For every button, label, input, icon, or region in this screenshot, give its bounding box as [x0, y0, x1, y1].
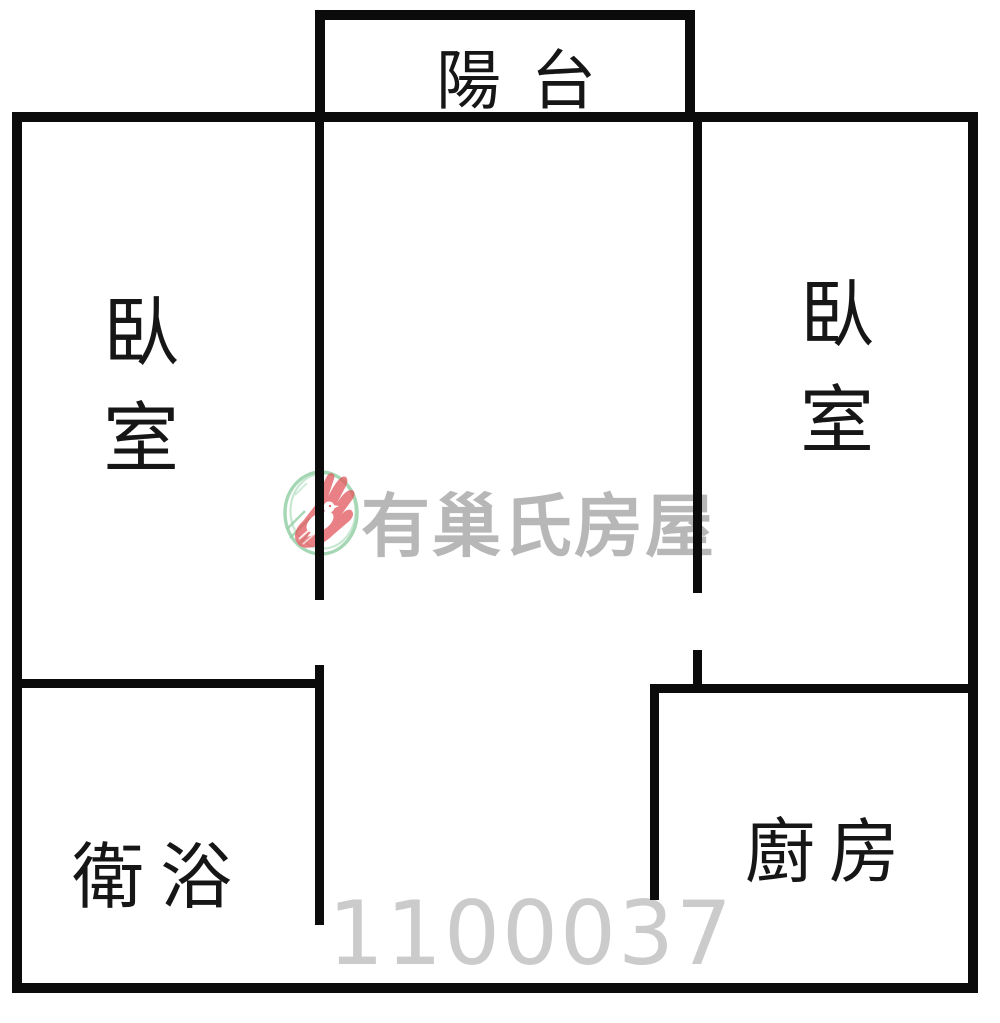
wall-kitchen-left — [650, 684, 659, 900]
balcony-label: 陽台 — [436, 28, 626, 122]
wall-balcony-left — [315, 10, 325, 122]
kitchen-label: 廚房 — [745, 796, 913, 897]
bedroom-right-char-2: 室 — [796, 368, 878, 474]
floor-plan: 有巢氏房屋 1100037 陽台 臥 室 臥 室 衛浴 廚房 — [0, 0, 1000, 1023]
wall-balcony-top — [315, 10, 695, 20]
wall-outer-bottom — [12, 983, 978, 993]
bedroom-left-char-2: 室 — [100, 386, 182, 492]
wall-balcony-right — [685, 10, 695, 122]
bedroom-right-char-1: 臥 — [796, 262, 878, 368]
wall-kitchen-top — [650, 684, 978, 693]
wall-bathroom-top — [12, 679, 320, 688]
bedroom-left-char-1: 臥 — [100, 280, 182, 386]
bathroom-label: 衛浴 — [72, 818, 248, 923]
wall-left-partition-lower — [315, 665, 324, 925]
wall-right-partition-upper — [693, 122, 702, 593]
brand-watermark-text: 有巢氏房屋 — [361, 470, 716, 570]
photo-id-watermark: 1100037 — [328, 882, 734, 985]
wall-outer-right — [968, 112, 978, 993]
wall-left-partition-upper — [315, 122, 324, 600]
bedroom-left-label: 臥 室 — [100, 280, 182, 492]
wall-outer-left — [12, 112, 22, 993]
bedroom-right-label: 臥 室 — [796, 262, 878, 474]
